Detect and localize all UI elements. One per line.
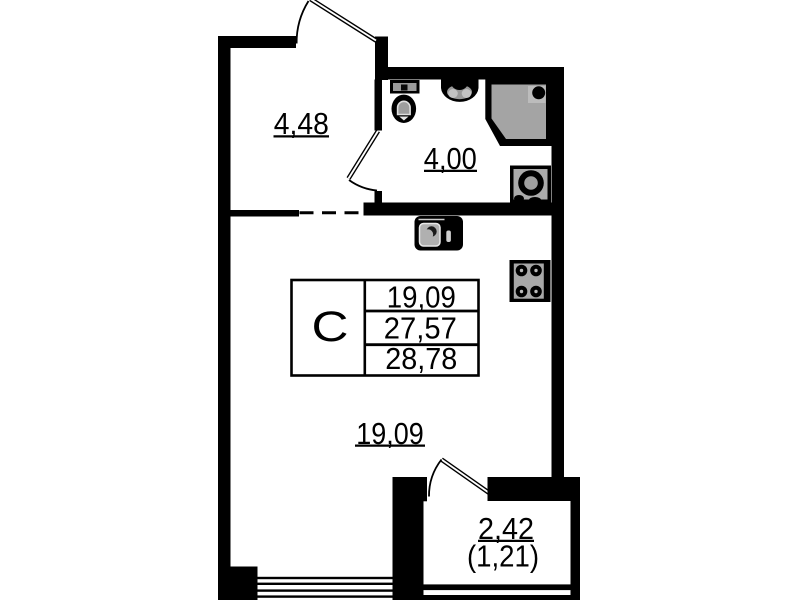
svg-text:(1,21): (1,21) [467, 539, 539, 574]
svg-text:С: С [312, 303, 349, 351]
svg-text:19,09: 19,09 [387, 280, 456, 315]
svg-text:28,78: 28,78 [385, 341, 457, 376]
